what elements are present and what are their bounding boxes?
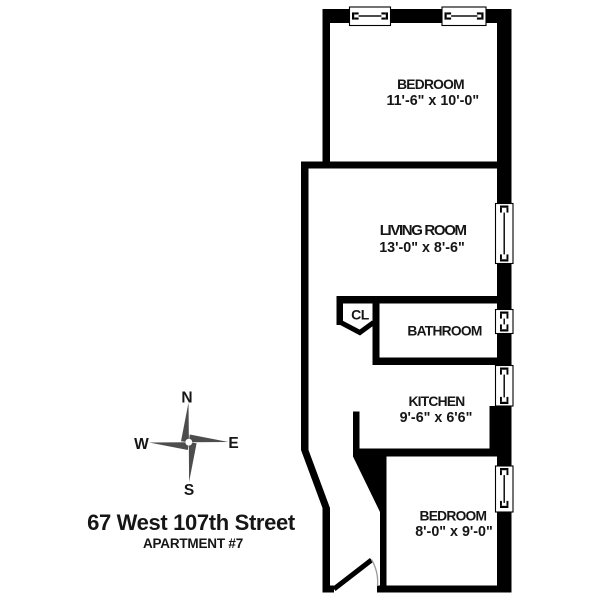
svg-text:W: W: [134, 436, 149, 453]
svg-text:N: N: [181, 390, 192, 407]
svg-text:BEDROOM: BEDROOM: [397, 77, 464, 92]
svg-text:E: E: [228, 435, 238, 452]
svg-text:13'-0" x 8'-6": 13'-0" x 8'-6": [379, 240, 465, 256]
svg-text:BATHROOM: BATHROOM: [407, 324, 481, 339]
svg-text:9'-6" x 6'6": 9'-6" x 6'6": [400, 410, 473, 426]
svg-text:S: S: [184, 482, 194, 499]
svg-text:CL: CL: [351, 307, 370, 323]
svg-text:LIVING ROOM: LIVING ROOM: [380, 222, 467, 239]
svg-text:8'-0" x 9'-0": 8'-0" x 9'-0": [415, 524, 493, 540]
svg-text:KITCHEN: KITCHEN: [408, 394, 465, 409]
svg-text:BEDROOM: BEDROOM: [419, 509, 486, 524]
svg-text:APARTMENT #7: APARTMENT #7: [143, 536, 243, 551]
svg-text:67 West 107th Street: 67 West 107th Street: [87, 510, 296, 535]
svg-text:11'-6" x 10'-0": 11'-6" x 10'-0": [386, 93, 479, 109]
